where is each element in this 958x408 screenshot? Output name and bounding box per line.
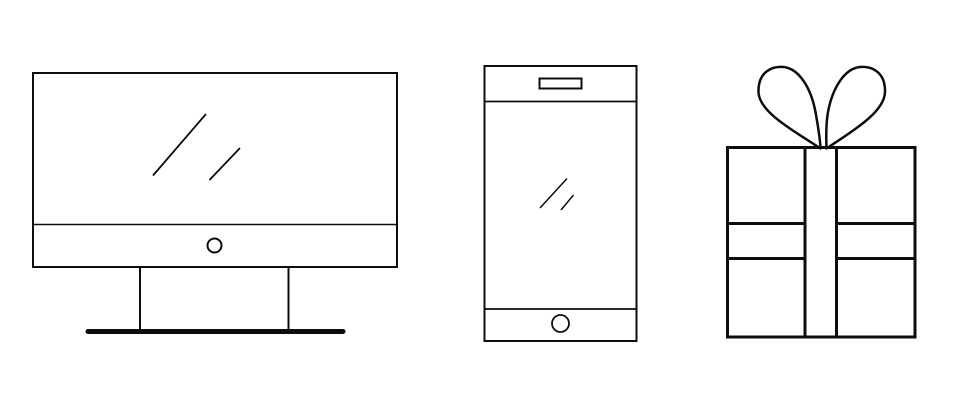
phone-home-button (552, 315, 569, 332)
three-icons-illustration (0, 0, 958, 408)
smartphone-icon (485, 66, 637, 341)
monitor-screen-glare-long (153, 114, 206, 176)
gift-bow-right-loop (826, 67, 885, 149)
illustration-canvas (0, 0, 958, 408)
phone-screen-glare-long (540, 179, 567, 209)
gift-box-outline (728, 148, 916, 338)
gift-bow-left-loop (758, 67, 820, 149)
monitor-screen-glare-short (210, 148, 241, 180)
gift-box-icon (728, 67, 916, 337)
phone-screen-glare-short (561, 195, 574, 210)
phone-earpiece-speaker (540, 79, 582, 89)
monitor-chin-button (208, 239, 222, 253)
phone-body-outline (485, 66, 637, 341)
desktop-monitor-icon (33, 73, 397, 332)
